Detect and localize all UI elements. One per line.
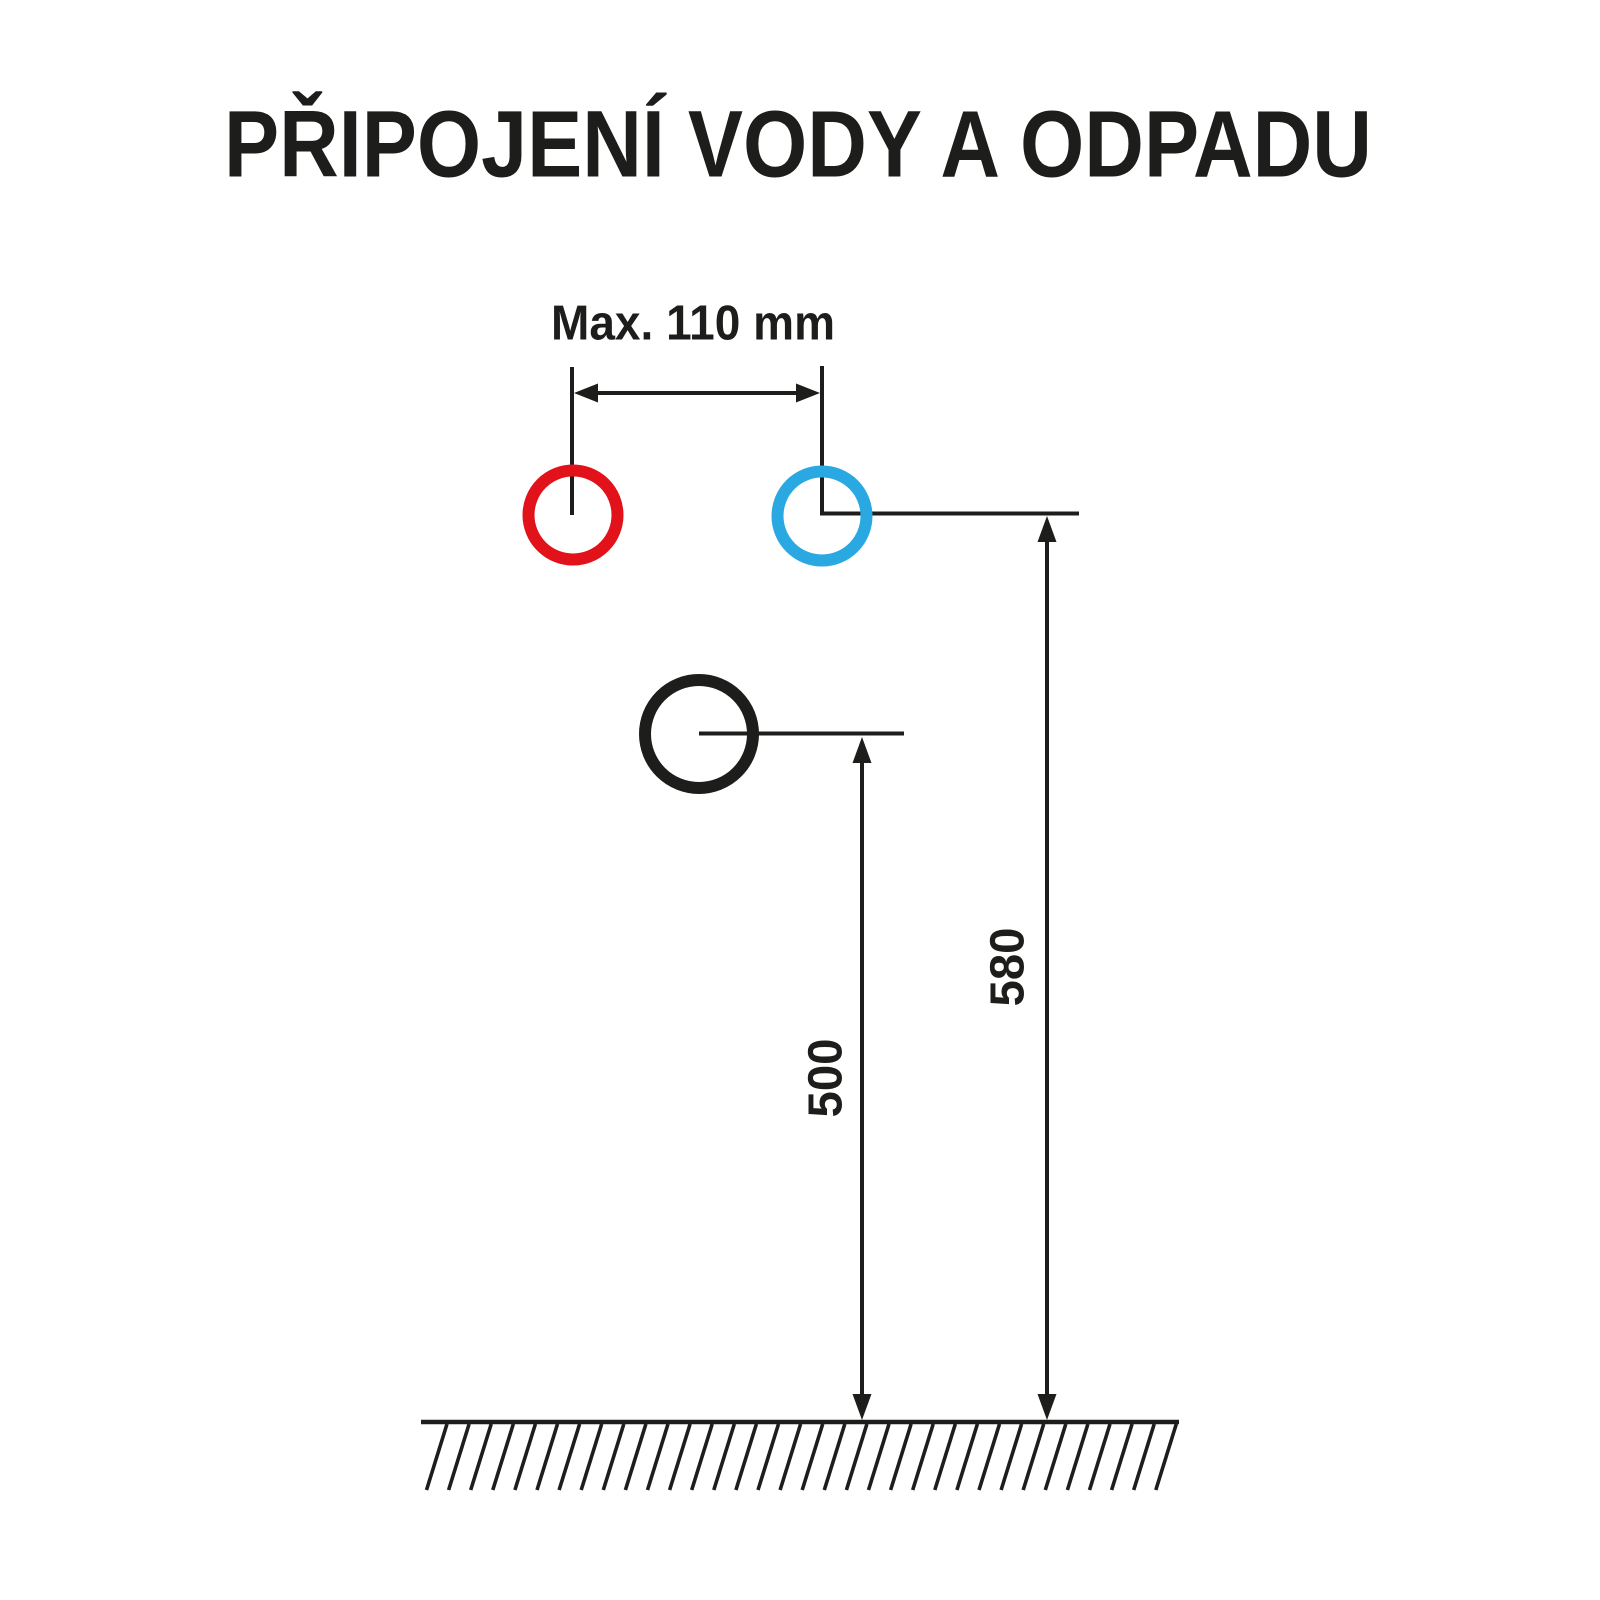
svg-text:500: 500 [800,1039,853,1118]
svg-text:PŘIPOJENÍ VODY A ODPADU: PŘIPOJENÍ VODY A ODPADU [224,92,1372,198]
svg-text:580: 580 [982,928,1035,1007]
svg-text:Max. 110 mm: Max. 110 mm [551,296,835,351]
